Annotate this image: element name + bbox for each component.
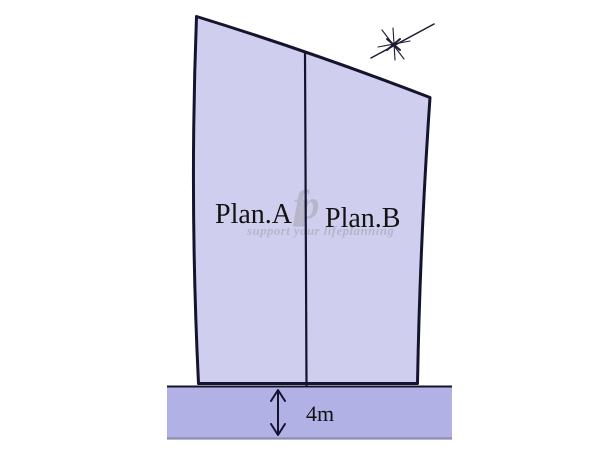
plot-label-plan-a: Plan.A — [215, 201, 292, 229]
watermark-logo-icon: fp — [293, 181, 312, 228]
plot-label-plan-b: Plan.B — [325, 205, 400, 233]
road-width-label: 4m — [306, 403, 334, 425]
diagram-canvas: fp support your lifeplanning Plan.A Plan… — [0, 0, 600, 449]
watermark: fp support your lifeplanning — [0, 0, 600, 449]
